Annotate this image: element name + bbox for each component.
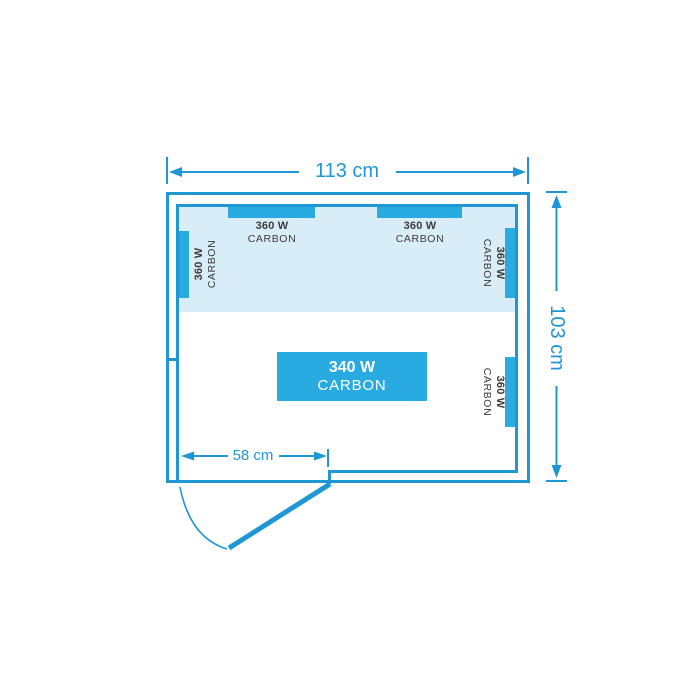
dim-height-label: 103 cm <box>545 283 569 393</box>
heater-watts: 360 W <box>217 220 327 233</box>
arrow-left-icon <box>169 167 182 177</box>
heater-strip-left-wall <box>179 231 189 298</box>
heater-watts: 360 W <box>494 247 507 280</box>
heater-type: CARBON <box>318 377 387 395</box>
heater-label-top-right: 360 W CARBON <box>365 220 475 245</box>
arrow-right-icon <box>513 167 526 177</box>
heater-type: CARBON <box>365 233 475 245</box>
inner-wall-right <box>515 204 518 473</box>
heater-strip-top-left <box>228 207 315 218</box>
arrow-down-icon <box>552 465 562 478</box>
heater-strip-top-right <box>377 207 462 218</box>
heater-type: CARBON <box>206 240 218 289</box>
floor-plan-diagram: 360 W CARBON 360 W CARBON 360 W CARBON 3… <box>0 0 700 700</box>
heater-type: CARBON <box>482 368 494 417</box>
heater-label-right-wall-upper: 360 W CARBON <box>480 223 508 303</box>
heater-watts: 360 W <box>365 220 475 233</box>
arrow-up-icon <box>552 195 562 208</box>
heater-watts: 340 W <box>329 358 375 377</box>
heater-watts: 360 W <box>494 376 507 409</box>
heater-type: CARBON <box>217 233 327 245</box>
heater-label-right-wall-lower: 360 W CARBON <box>480 352 508 432</box>
dim-door-label: 58 cm <box>208 447 298 465</box>
dim-width-label: 113 cm <box>292 159 402 183</box>
left-wall-joint-tick <box>166 358 179 361</box>
floor-heater-box: 340 W CARBON <box>277 352 427 401</box>
door-jamb <box>328 470 331 484</box>
heater-label-left-wall: 360 W CARBON <box>191 224 219 304</box>
inner-wall-bottom <box>328 470 518 473</box>
heater-watts: 360 W <box>193 248 206 281</box>
door-swing-arc <box>180 487 227 549</box>
door-leaf <box>229 484 330 548</box>
heater-type: CARBON <box>482 239 494 288</box>
heater-label-top-left: 360 W CARBON <box>217 220 327 245</box>
